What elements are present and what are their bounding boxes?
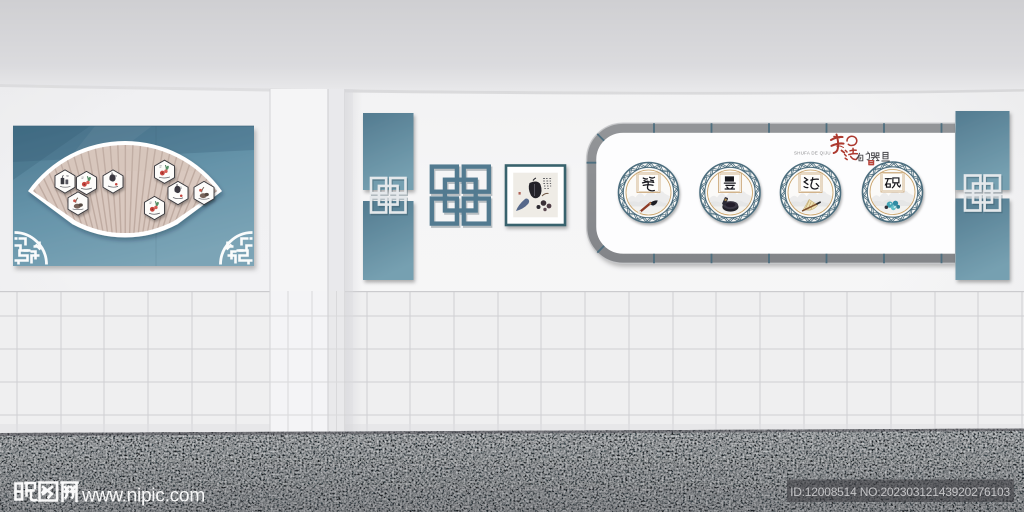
svg-text:www.nipic.com: www.nipic.com bbox=[81, 486, 205, 507]
svg-text:ID:12008514 NO:202303121439202: ID:12008514 NO:20230312143920276103 bbox=[790, 485, 1010, 499]
svg-text:SHUFA DE QIJU: SHUFA DE QIJU bbox=[794, 150, 831, 155]
